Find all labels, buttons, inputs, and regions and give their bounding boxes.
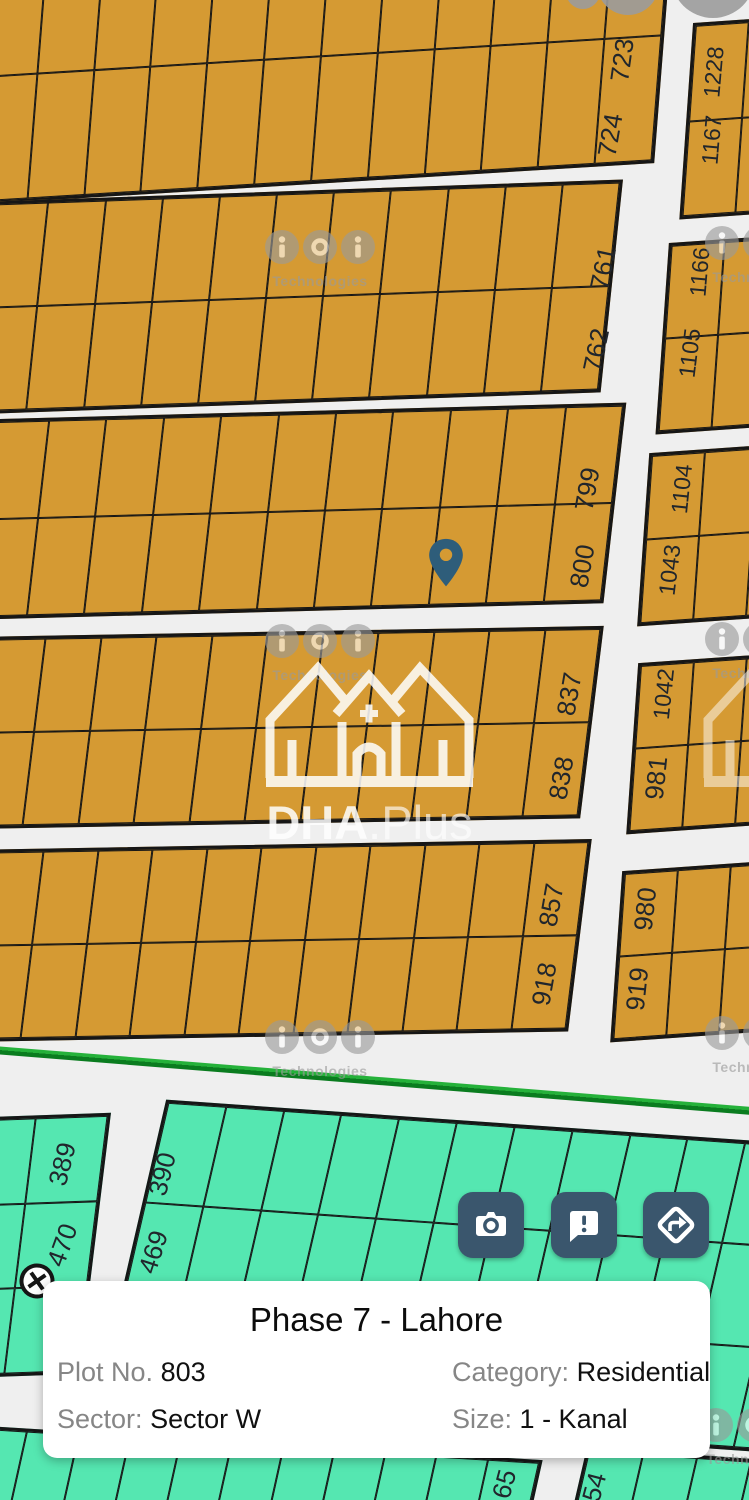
plot-number-label: 980: [630, 886, 660, 932]
size-label: Size:: [452, 1404, 512, 1434]
sector-value: Sector W: [150, 1404, 261, 1434]
size-field: Size: 1 - Kanal: [452, 1404, 628, 1435]
sector-label: Sector:: [57, 1404, 143, 1434]
size-value: 1 - Kanal: [520, 1404, 628, 1434]
plot-number-label: 1104: [668, 463, 696, 515]
plot-number-label: 981: [641, 755, 671, 801]
plot-cell[interactable]: [688, 659, 747, 745]
plot-number-label: 65: [488, 1467, 521, 1500]
plot-block: [0, 179, 623, 416]
plot-cell[interactable]: [712, 331, 749, 427]
directions-icon: [654, 1203, 698, 1247]
plot-cell[interactable]: [368, 49, 435, 178]
plot-cell[interactable]: [481, 42, 548, 171]
plot-number-label: 800: [565, 542, 598, 589]
plot-number-label: 857: [534, 881, 567, 928]
category-field: Category: Residential: [452, 1357, 710, 1388]
plot-map-screen: 7237241228116776176211661105799800110410…: [0, 0, 749, 1500]
plot-cell[interactable]: [666, 949, 725, 1035]
plot-number-label: 918: [527, 960, 560, 1007]
plot-block: [0, 626, 604, 830]
plot-number-label: 1167: [698, 114, 725, 165]
plot-cell[interactable]: [198, 59, 265, 188]
camera-button[interactable]: [458, 1192, 524, 1258]
plot-block: [610, 860, 749, 1043]
plot-cell[interactable]: [719, 945, 749, 1031]
plot-number-label: 762: [579, 326, 613, 374]
feedback-button[interactable]: [551, 1192, 617, 1258]
plot-no-label: Plot No.: [57, 1357, 153, 1387]
plot-number-label: 724: [593, 111, 626, 158]
phase-title: Phase 7 - Lahore: [43, 1301, 710, 1339]
green-belt-road: [0, 1046, 749, 1117]
plot-number-label: 1166: [686, 246, 713, 297]
plot-number-label: 1043: [655, 543, 684, 597]
plot-cell[interactable]: [141, 63, 208, 192]
plot-number-label: 1105: [676, 327, 705, 379]
plot-number-label: 1042: [650, 667, 678, 720]
cropped-watermark-blob: [0, 0, 749, 40]
plot-number-label: 838: [544, 754, 577, 801]
plot-cell[interactable]: [693, 532, 749, 619]
plot-cell[interactable]: [672, 867, 731, 953]
feedback-icon: [564, 1205, 604, 1245]
plot-block: [0, 839, 592, 1043]
category-label: Category:: [452, 1357, 569, 1387]
plot-block: [0, 403, 626, 622]
camera-icon: [471, 1205, 511, 1245]
plot-cell[interactable]: [311, 52, 378, 181]
plot-number-label: 723: [606, 37, 638, 84]
plot-cell[interactable]: [27, 70, 94, 199]
plot-number-label: 1228: [700, 46, 727, 99]
location-pin-icon: [427, 534, 465, 592]
plot-info-card: Phase 7 - Lahore Plot No. 803 Category: …: [43, 1281, 710, 1458]
category-value: Residential: [577, 1357, 711, 1387]
plot-cell[interactable]: [84, 66, 151, 195]
plot-number-label: 799: [570, 465, 603, 512]
plot-block: [626, 652, 749, 835]
plot-number-label: 837: [552, 670, 585, 717]
technologies-watermark-text: Technologies: [700, 1059, 749, 1075]
plot-cell[interactable]: [682, 741, 741, 827]
plot-cell[interactable]: [254, 56, 321, 185]
plot-number-label: 54: [578, 1470, 611, 1500]
plot-cell[interactable]: [699, 449, 749, 536]
plot-cell[interactable]: [424, 45, 491, 174]
sector-field: Sector: Sector W: [57, 1404, 261, 1435]
plot-no-field: Plot No. 803: [57, 1357, 206, 1388]
plot-number-label: 761: [586, 244, 620, 292]
plot-number-label: 919: [622, 966, 652, 1012]
plot-no-value: 803: [161, 1357, 206, 1387]
directions-button[interactable]: [643, 1192, 709, 1258]
ioi-logo-icon: [700, 618, 749, 658]
